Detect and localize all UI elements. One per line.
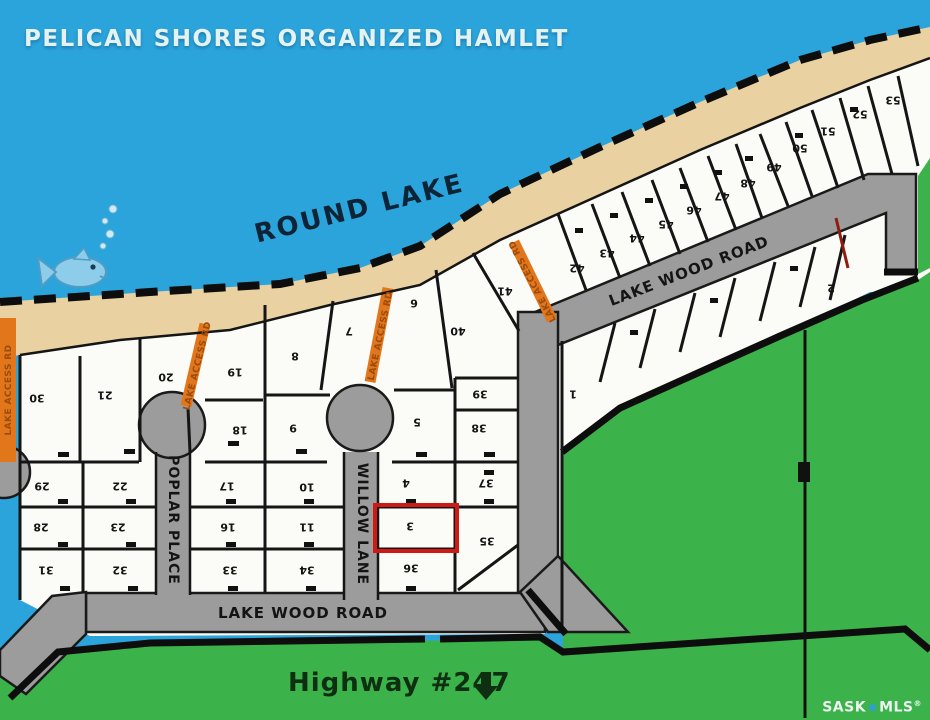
down-arrow-icon bbox=[474, 672, 498, 702]
mls-dot-icon bbox=[869, 704, 876, 711]
lot-number: 11 bbox=[299, 521, 314, 534]
lot-number: 9 bbox=[289, 422, 297, 435]
plat-map: PELICAN SHORES ORGANIZED HAMLET ROUND LA… bbox=[0, 0, 930, 720]
lot-number: 2 bbox=[827, 282, 835, 295]
lot-number: 47 bbox=[714, 190, 729, 203]
lot-number: 5 bbox=[413, 416, 421, 429]
lot-number: 37 bbox=[478, 477, 493, 490]
lot-number: 34 bbox=[299, 564, 314, 577]
lake-access-rd-label-west: LAKE ACCESS RD bbox=[4, 345, 14, 436]
lot-number: 32 bbox=[112, 564, 127, 577]
lot-number: 18 bbox=[232, 424, 247, 437]
willow-lane-culdesac bbox=[327, 385, 393, 451]
lot-number: 8 bbox=[291, 350, 299, 363]
lot-number: 42 bbox=[569, 262, 584, 275]
lot-number: 29 bbox=[34, 480, 49, 493]
lot-number: 36 bbox=[403, 562, 418, 575]
lot-number: 45 bbox=[658, 218, 673, 231]
lot-number: 3 bbox=[406, 520, 414, 533]
lot-number: 20 bbox=[158, 371, 173, 384]
watermark-mls: MLS bbox=[879, 700, 913, 716]
lot-number: 17 bbox=[219, 480, 234, 493]
lot-number: 50 bbox=[792, 142, 807, 155]
watermark-registered: ® bbox=[914, 699, 923, 708]
poplar-place-culdesac bbox=[139, 392, 205, 458]
lot-number: 46 bbox=[686, 204, 701, 217]
lot-number: 4 bbox=[402, 477, 410, 490]
lot-number: 49 bbox=[766, 161, 781, 174]
lot-number: 1 bbox=[569, 388, 577, 401]
lot-number: 43 bbox=[599, 247, 614, 260]
lake-wood-road-vertical bbox=[518, 312, 558, 595]
grass-area-northeast bbox=[918, 158, 930, 274]
watermark-sask: SASK bbox=[822, 700, 866, 716]
lot-number: 53 bbox=[885, 94, 900, 107]
lot-number: 10 bbox=[299, 481, 314, 494]
lot-number: 6 bbox=[410, 297, 418, 310]
highlighted-lot-outline bbox=[373, 503, 459, 553]
poplar-place-label: POPLAR PLACE bbox=[165, 455, 181, 585]
lot-number: 7 bbox=[345, 325, 353, 338]
lot-number: 40 bbox=[450, 325, 465, 338]
lot-number: 30 bbox=[29, 392, 44, 405]
map-graphics bbox=[0, 0, 930, 720]
lot-number: 51 bbox=[820, 125, 835, 138]
lot-number: 31 bbox=[38, 564, 53, 577]
lot-number: 38 bbox=[471, 422, 486, 435]
lot-number: 16 bbox=[220, 521, 235, 534]
lake-wood-road-lower-label: LAKE WOOD ROAD bbox=[218, 604, 388, 622]
lot-number: 41 bbox=[497, 285, 512, 298]
lot-number: 19 bbox=[227, 366, 242, 379]
map-title: PELICAN SHORES ORGANIZED HAMLET bbox=[24, 26, 569, 52]
sask-mls-watermark: SASKMLS® bbox=[822, 699, 922, 716]
lot-number: 21 bbox=[97, 389, 112, 402]
lot-number: 39 bbox=[472, 388, 487, 401]
lot-number: 35 bbox=[479, 535, 494, 548]
lot-number: 52 bbox=[852, 108, 867, 121]
willow-lane-label: WILLOW LANE bbox=[354, 463, 370, 585]
lot-number: 44 bbox=[629, 232, 644, 245]
lot-number: 33 bbox=[222, 564, 237, 577]
lot-number: 22 bbox=[112, 480, 127, 493]
lot-number: 23 bbox=[110, 521, 125, 534]
lot-number: 48 bbox=[740, 177, 755, 190]
lot-number: 28 bbox=[33, 521, 48, 534]
